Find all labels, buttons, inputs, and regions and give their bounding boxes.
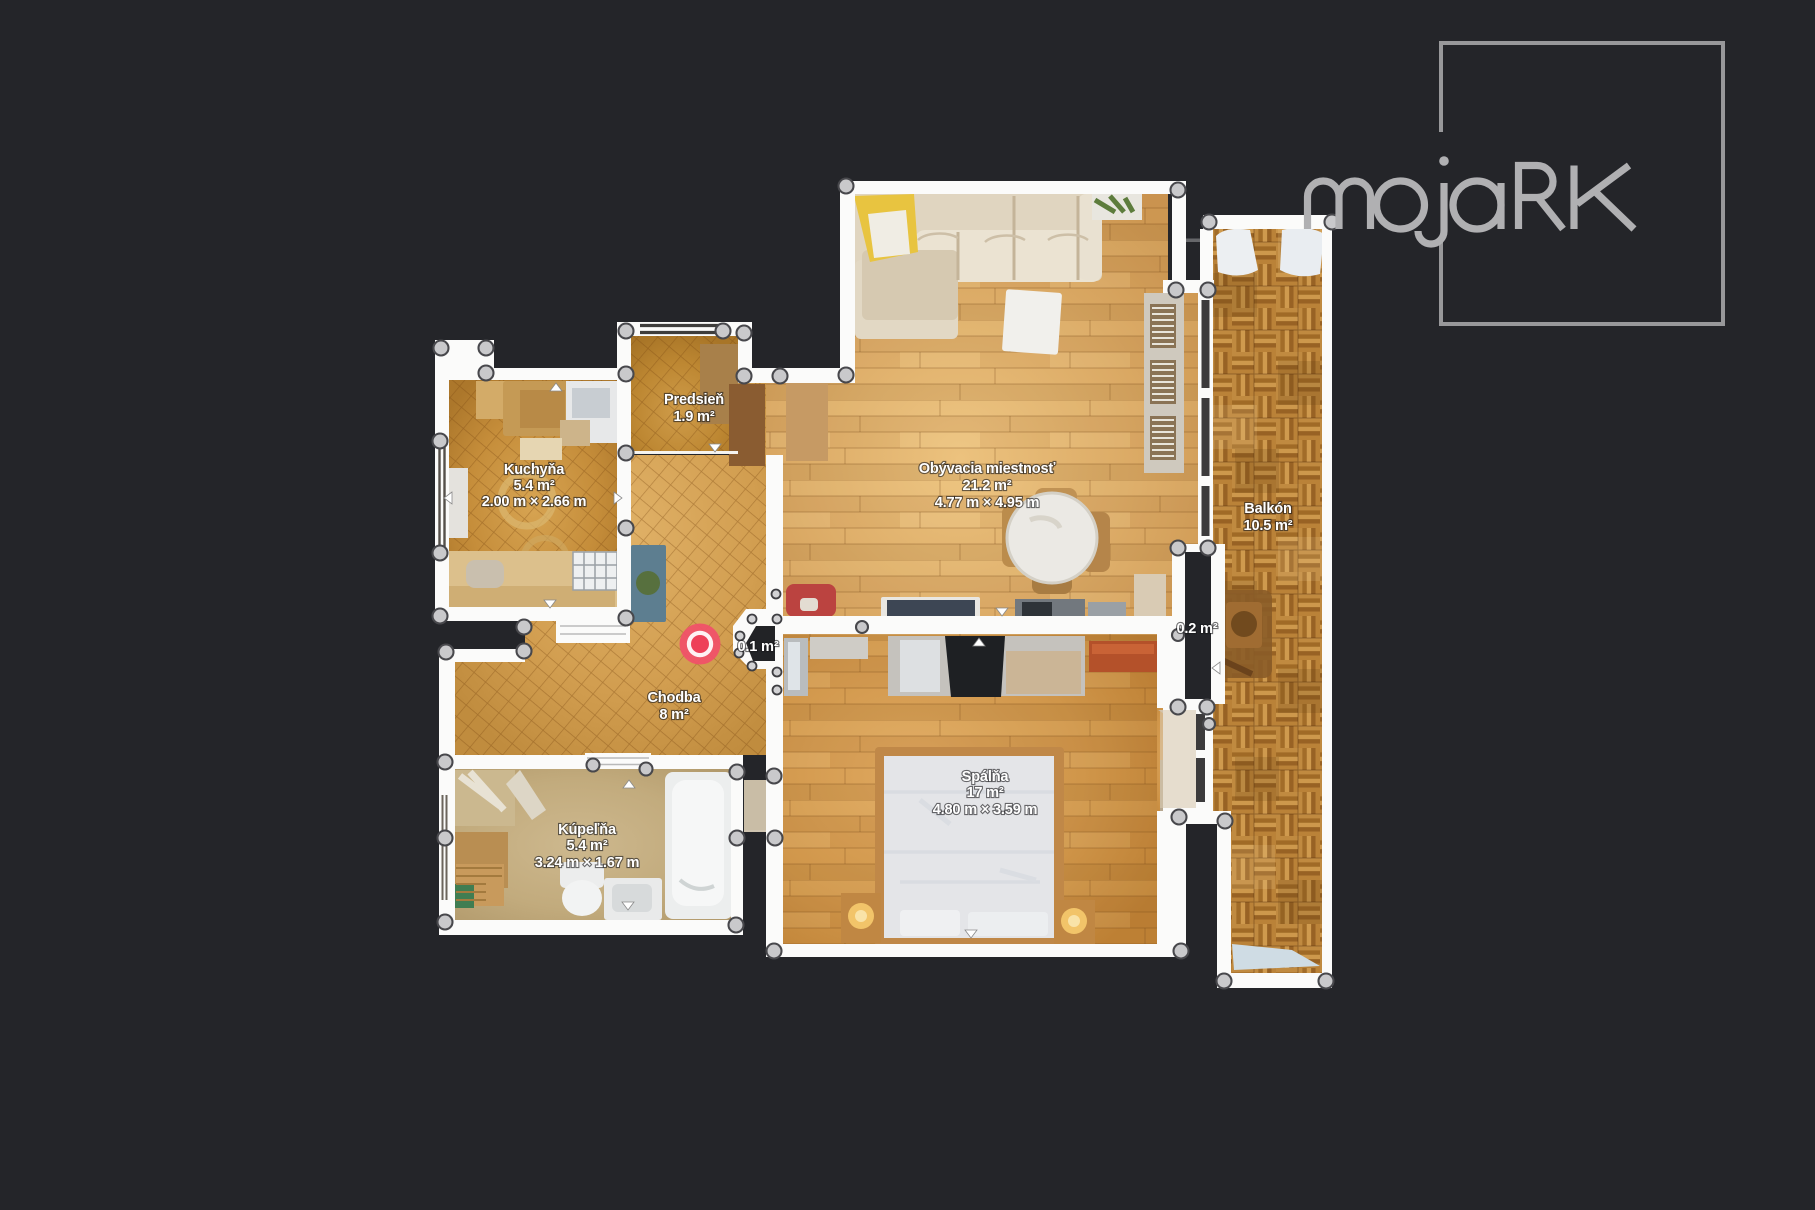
svg-text:0.2 m²: 0.2 m² xyxy=(1177,621,1218,637)
svg-text:Chodba: Chodba xyxy=(647,690,701,706)
svg-text:3.24 m × 1.67 m: 3.24 m × 1.67 m xyxy=(535,855,640,871)
svg-text:Spálňa: Spálňa xyxy=(962,769,1010,785)
svg-text:4.80 m × 3.59 m: 4.80 m × 3.59 m xyxy=(933,802,1038,818)
svg-text:5.4 m²: 5.4 m² xyxy=(514,478,555,494)
svg-text:5.4 m²: 5.4 m² xyxy=(567,838,608,854)
svg-text:1.9 m²: 1.9 m² xyxy=(674,409,715,425)
svg-text:Obývacia miestnosť: Obývacia miestnosť xyxy=(919,461,1056,477)
svg-text:0.1 m²: 0.1 m² xyxy=(738,639,779,655)
svg-text:Balkón: Balkón xyxy=(1244,501,1292,517)
svg-text:4.77 m × 4.95 m: 4.77 m × 4.95 m xyxy=(935,495,1040,511)
svg-text:8 m²: 8 m² xyxy=(659,707,689,723)
svg-text:17 m²: 17 m² xyxy=(966,785,1003,801)
svg-text:2.00 m × 2.66 m: 2.00 m × 2.66 m xyxy=(482,494,587,510)
svg-text:10.5 m²: 10.5 m² xyxy=(1244,518,1293,534)
svg-text:21.2 m²: 21.2 m² xyxy=(963,478,1012,494)
svg-text:Predsieň: Predsieň xyxy=(664,392,724,408)
svg-text:Kúpeľňa: Kúpeľňa xyxy=(558,822,617,838)
svg-text:Kuchyňa: Kuchyňa xyxy=(504,462,565,478)
